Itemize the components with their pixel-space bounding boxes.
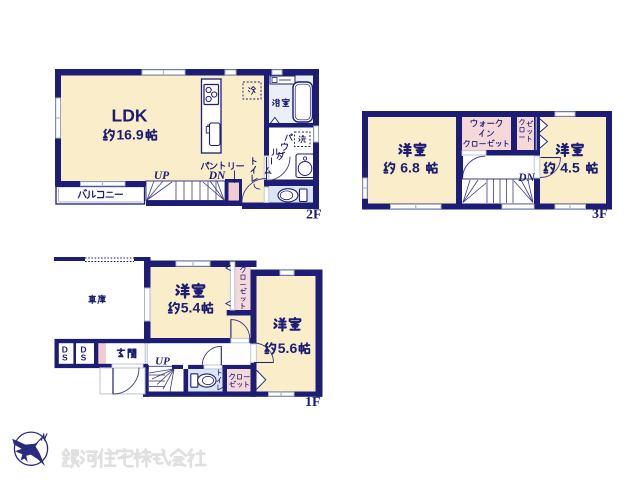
svg-text:3F: 3F	[592, 207, 608, 222]
svg-text:UP: UP	[155, 356, 170, 368]
svg-text:DN: DN	[208, 170, 226, 182]
svg-text:16.9: 16.9	[116, 127, 143, 143]
svg-text:5.6: 5.6	[278, 340, 298, 356]
svg-text:4.5: 4.5	[560, 160, 580, 176]
svg-text:S: S	[81, 353, 87, 363]
svg-text:6.8: 6.8	[400, 160, 420, 176]
svg-text:DN: DN	[517, 172, 535, 184]
svg-text:UP: UP	[154, 170, 170, 182]
svg-text:2F: 2F	[306, 208, 322, 223]
svg-text:LDK: LDK	[112, 106, 148, 126]
svg-text:1F: 1F	[305, 395, 321, 410]
svg-text:S: S	[62, 353, 68, 363]
svg-text:5.4: 5.4	[181, 300, 201, 316]
